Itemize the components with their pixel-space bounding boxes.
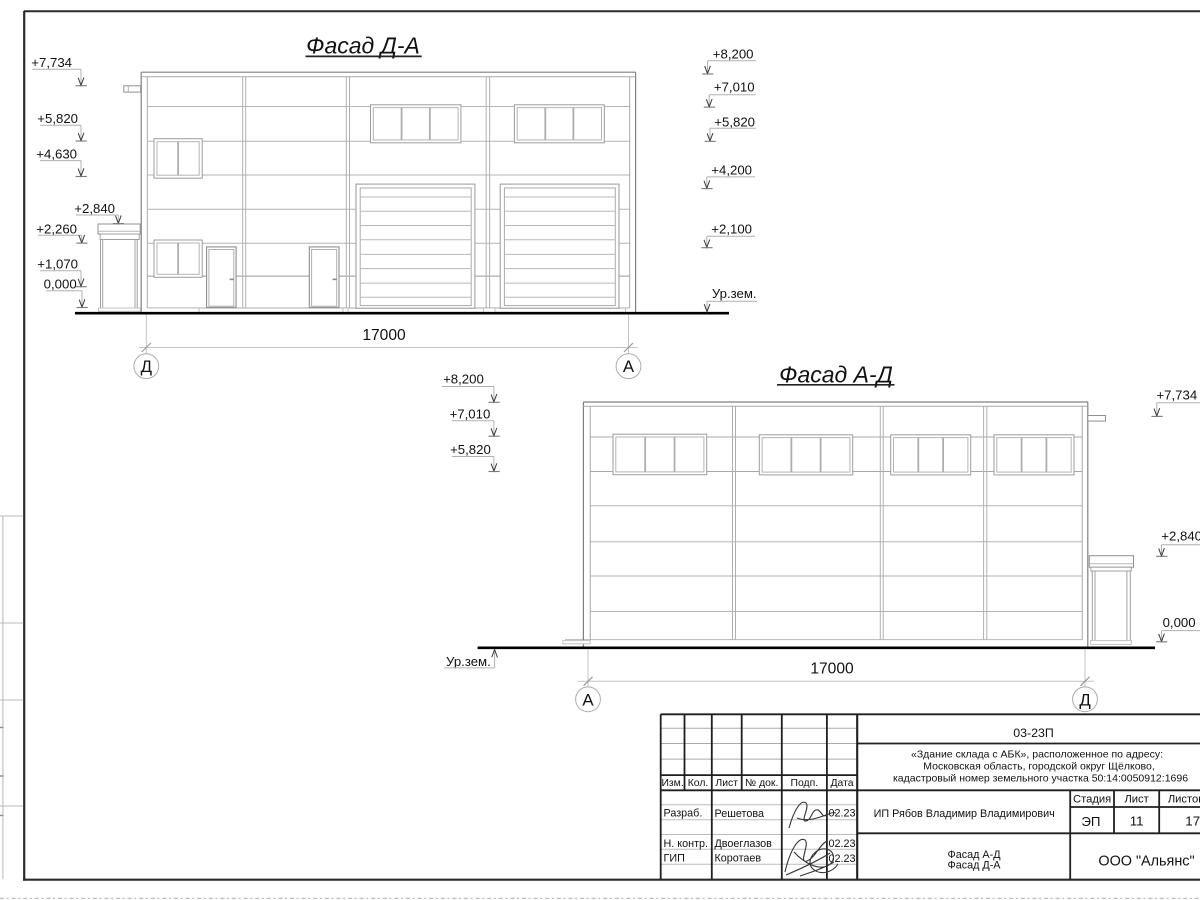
svg-text:17: 17 <box>1185 814 1200 829</box>
svg-text:№ док.: № док. <box>745 778 778 789</box>
svg-text:Кол.: Кол. <box>688 778 709 789</box>
svg-text:ООО "Альянс": ООО "Альянс" <box>1098 853 1194 869</box>
svg-text:Н. контр.: Н. контр. <box>664 838 709 850</box>
svg-text:11: 11 <box>1130 814 1144 829</box>
svg-text:А: А <box>623 357 635 376</box>
svg-text:+7,010: +7,010 <box>450 406 491 421</box>
svg-text:Подп.: Подп. <box>790 778 818 789</box>
svg-text:02.23: 02.23 <box>828 838 855 850</box>
svg-text:+7,734: +7,734 <box>1156 387 1197 402</box>
svg-text:ГИП: ГИП <box>664 852 685 864</box>
svg-text:+5,820: +5,820 <box>714 115 755 130</box>
svg-text:+8,200: +8,200 <box>713 47 754 62</box>
svg-text:Стадия: Стадия <box>1073 794 1111 806</box>
svg-text:+4,200: +4,200 <box>711 162 752 177</box>
svg-text:+5,820: +5,820 <box>450 442 491 457</box>
svg-text:«Здание склада с АБК», располо: «Здание склада с АБК», расположенное по … <box>911 749 1163 761</box>
svg-text:17000: 17000 <box>362 327 406 344</box>
svg-text:ИП Рябов Владимир Владимирович: ИП Рябов Владимир Владимирович <box>874 808 1055 820</box>
svg-text:Ур.зем.: Ур.зем. <box>712 286 757 301</box>
svg-text:Ур.зем.: Ур.зем. <box>446 654 491 669</box>
svg-text:Д: Д <box>1079 690 1091 709</box>
svg-text:+2,840: +2,840 <box>74 201 115 216</box>
svg-text:+8,200: +8,200 <box>443 371 484 386</box>
svg-text:Фасад Д-А: Фасад Д-А <box>306 33 420 59</box>
svg-text:кадастровый номер земельного у: кадастровый номер земельного участка 50:… <box>893 773 1188 785</box>
svg-text:Лист: Лист <box>715 778 738 789</box>
svg-text:Фасад Д-А: Фасад Д-А <box>947 860 1001 872</box>
svg-text:+4,630: +4,630 <box>36 146 77 161</box>
svg-text:Решетова: Решетова <box>715 808 765 820</box>
svg-text:+2,260: +2,260 <box>36 221 77 236</box>
svg-text:+7,010: +7,010 <box>714 80 755 95</box>
svg-text:+1,070: +1,070 <box>37 257 78 272</box>
svg-text:А: А <box>582 690 594 709</box>
svg-text:0,000: 0,000 <box>1163 615 1196 630</box>
svg-text:0,000: 0,000 <box>44 277 77 292</box>
svg-text:17000: 17000 <box>810 660 854 677</box>
svg-text:+2,100: +2,100 <box>711 222 752 237</box>
svg-text:Фасад А-Д: Фасад А-Д <box>779 362 893 388</box>
svg-text:Лист: Лист <box>1124 794 1148 806</box>
svg-text:Изм.: Изм. <box>661 778 683 789</box>
svg-text:Московская область, городской: Московская область, городской округ Щёлк… <box>923 761 1155 773</box>
svg-text:+7,734: +7,734 <box>31 55 72 70</box>
svg-text:Дата: Дата <box>830 778 853 789</box>
svg-text:03-23П: 03-23П <box>1013 726 1054 740</box>
svg-text:02.23: 02.23 <box>828 808 855 820</box>
svg-text:Листов: Листов <box>1168 794 1200 806</box>
svg-text:Разраб.: Разраб. <box>664 807 703 819</box>
svg-text:ЭП: ЭП <box>1081 814 1100 829</box>
svg-text:+5,820: +5,820 <box>37 111 78 126</box>
svg-text:+2,840: +2,840 <box>1161 529 1200 544</box>
svg-text:Двоеглазов: Двоеглазов <box>715 838 773 850</box>
svg-text:Коротаев: Коротаев <box>715 852 762 864</box>
svg-text:Д: Д <box>141 357 153 376</box>
